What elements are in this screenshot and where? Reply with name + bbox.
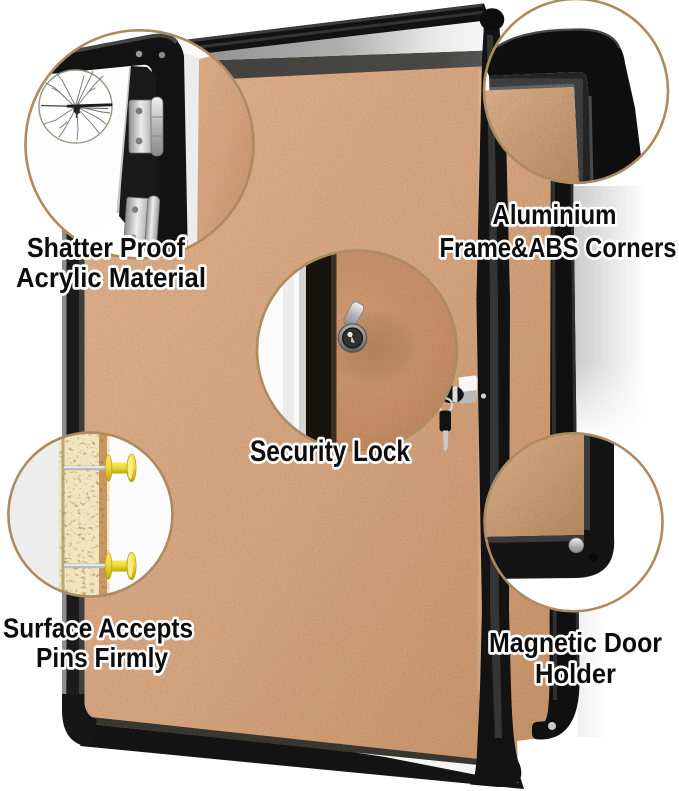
svg-text:Surface Accepts: Surface Accepts (3, 613, 193, 644)
svg-text:Holder: Holder (535, 658, 616, 689)
svg-text:Shatter Proof: Shatter Proof (27, 232, 186, 263)
svg-text:Acrylic Material: Acrylic Material (16, 262, 206, 293)
svg-text:Aluminium: Aluminium (493, 199, 617, 230)
svg-text:Frame&ABS Corners: Frame&ABS Corners (440, 232, 677, 263)
svg-text:Pins Firmly: Pins Firmly (36, 642, 168, 673)
svg-text:Magnetic Door: Magnetic Door (489, 627, 662, 658)
svg-text:Security Lock: Security Lock (250, 435, 410, 468)
